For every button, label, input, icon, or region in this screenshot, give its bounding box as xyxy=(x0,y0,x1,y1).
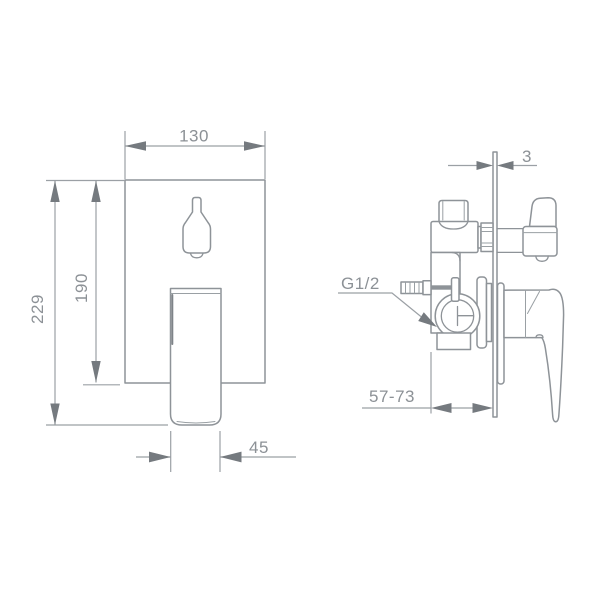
lever-escutcheon xyxy=(498,283,505,384)
dim-130-arrow-left xyxy=(125,141,146,151)
front-view: 130 229 190 45 xyxy=(28,127,296,473)
dimension-install-depth: 57-73 xyxy=(362,352,493,414)
dimension-handle-width: 45 xyxy=(136,431,296,472)
side-lever-handle xyxy=(498,283,564,422)
screw-thread xyxy=(401,282,423,294)
knob-nub xyxy=(536,256,549,261)
dim-190-label: 190 xyxy=(72,273,91,303)
dim-190-arrow-down xyxy=(91,361,100,383)
mixer-dimension-drawing: 130 229 190 45 xyxy=(0,0,600,600)
g12-leader xyxy=(338,293,421,317)
side-top-port xyxy=(439,201,468,222)
dimension-plate-height: 190 xyxy=(72,181,120,385)
screw-head xyxy=(423,281,431,295)
dim-3-arrow-left xyxy=(477,161,494,170)
dim-229-arrow-up xyxy=(50,181,59,203)
dim-130-arrow-right xyxy=(244,141,265,151)
dim-5773-label: 57-73 xyxy=(369,387,415,406)
side-sleeve-inner xyxy=(487,284,492,342)
technical-drawing-canvas: 130 229 190 45 xyxy=(0,0,600,600)
side-body-upper xyxy=(431,222,478,253)
side-view: 3 57-73 G1/2 xyxy=(338,147,564,422)
knob-grip xyxy=(530,198,557,227)
dim-45-arrow-right xyxy=(220,452,242,463)
dim-130-label: 130 xyxy=(179,127,209,146)
dim-190-arrow-up xyxy=(91,181,100,203)
dim-5773-arrow-right xyxy=(473,403,494,413)
dim-3-arrow-right xyxy=(497,161,514,170)
knob-stem xyxy=(497,229,523,253)
g12-label: G1/2 xyxy=(341,274,380,293)
dim-229-label: 229 xyxy=(28,294,47,324)
side-diverter-knob xyxy=(497,198,557,261)
dim-229-arrow-down xyxy=(50,404,59,426)
dimension-plate-width: 130 xyxy=(125,127,265,180)
side-plate xyxy=(493,152,497,417)
dim-5773-arrow-left xyxy=(431,403,452,413)
shutoff-key xyxy=(452,278,460,302)
side-valve-body xyxy=(401,201,493,350)
front-lever-handle xyxy=(171,289,222,426)
dim-45-arrow-left xyxy=(149,452,171,463)
dim-45-label: 45 xyxy=(249,438,269,457)
front-handle-outline xyxy=(171,289,222,426)
screw-shaft xyxy=(431,285,452,289)
lever-outline xyxy=(504,289,564,422)
dim-3-label: 3 xyxy=(522,147,532,166)
knob-body xyxy=(523,227,557,257)
side-body-lower-box xyxy=(437,333,471,350)
